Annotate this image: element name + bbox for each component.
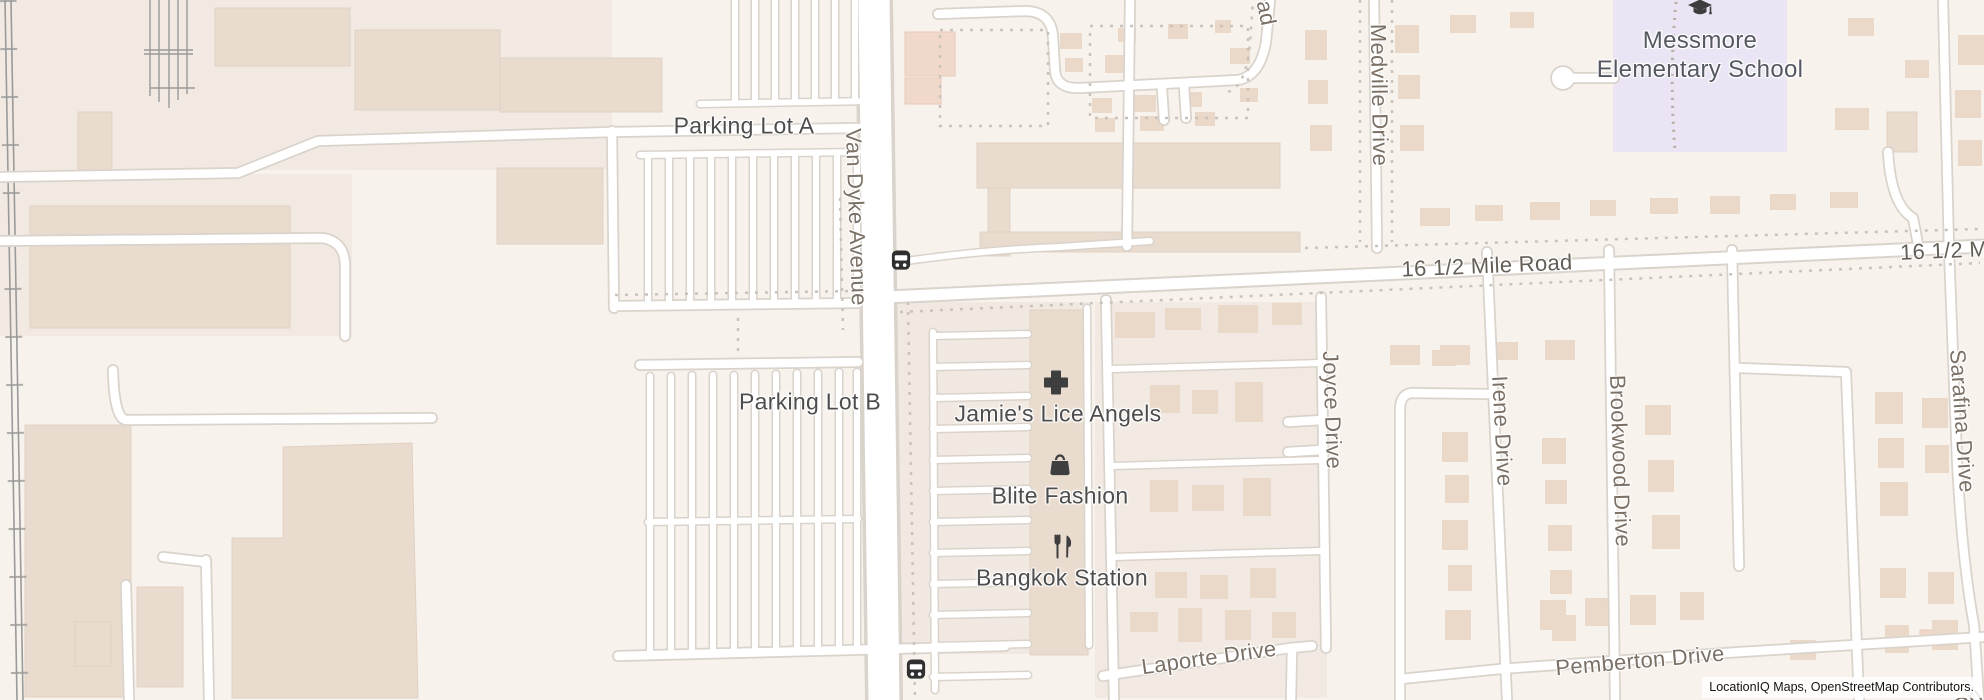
map-canvas[interactable]: Parking Lot A Parking Lot B Van Dyke Ave… [0, 0, 1984, 700]
school-name-line2: Elementary School [1597, 56, 1804, 84]
school-name-line1: Messmore [1643, 27, 1757, 55]
street-label-medville-drive: Medville Drive [1365, 24, 1393, 167]
graduation-cap-icon[interactable] [1687, 0, 1713, 28]
bus-stop-icon[interactable] [905, 658, 928, 686]
street-label-joyce-drive: Joyce Drive [1317, 350, 1347, 469]
shopping-bag-icon[interactable] [1047, 452, 1073, 483]
label-parking-lot-a: Parking Lot A [674, 113, 815, 140]
bus-stop-icon[interactable] [890, 249, 913, 277]
restaurant-icon[interactable] [1051, 534, 1075, 565]
map-attribution: LocationIQ Maps, OpenStreetMap Contribut… [1702, 677, 1981, 698]
poi-label-jamies-lice-angels: Jamie's Lice Angels [955, 401, 1162, 428]
map-tiles [0, 0, 1984, 700]
label-parking-lot-b: Parking Lot B [739, 389, 881, 416]
poi-label-blite-fashion: Blite Fashion [992, 483, 1129, 510]
street-label-16-half-mile-road-partial: 16 1/2 M [1899, 236, 1984, 266]
medical-cross-icon[interactable] [1042, 369, 1070, 402]
poi-label-bangkok-station: Bangkok Station [976, 565, 1148, 592]
